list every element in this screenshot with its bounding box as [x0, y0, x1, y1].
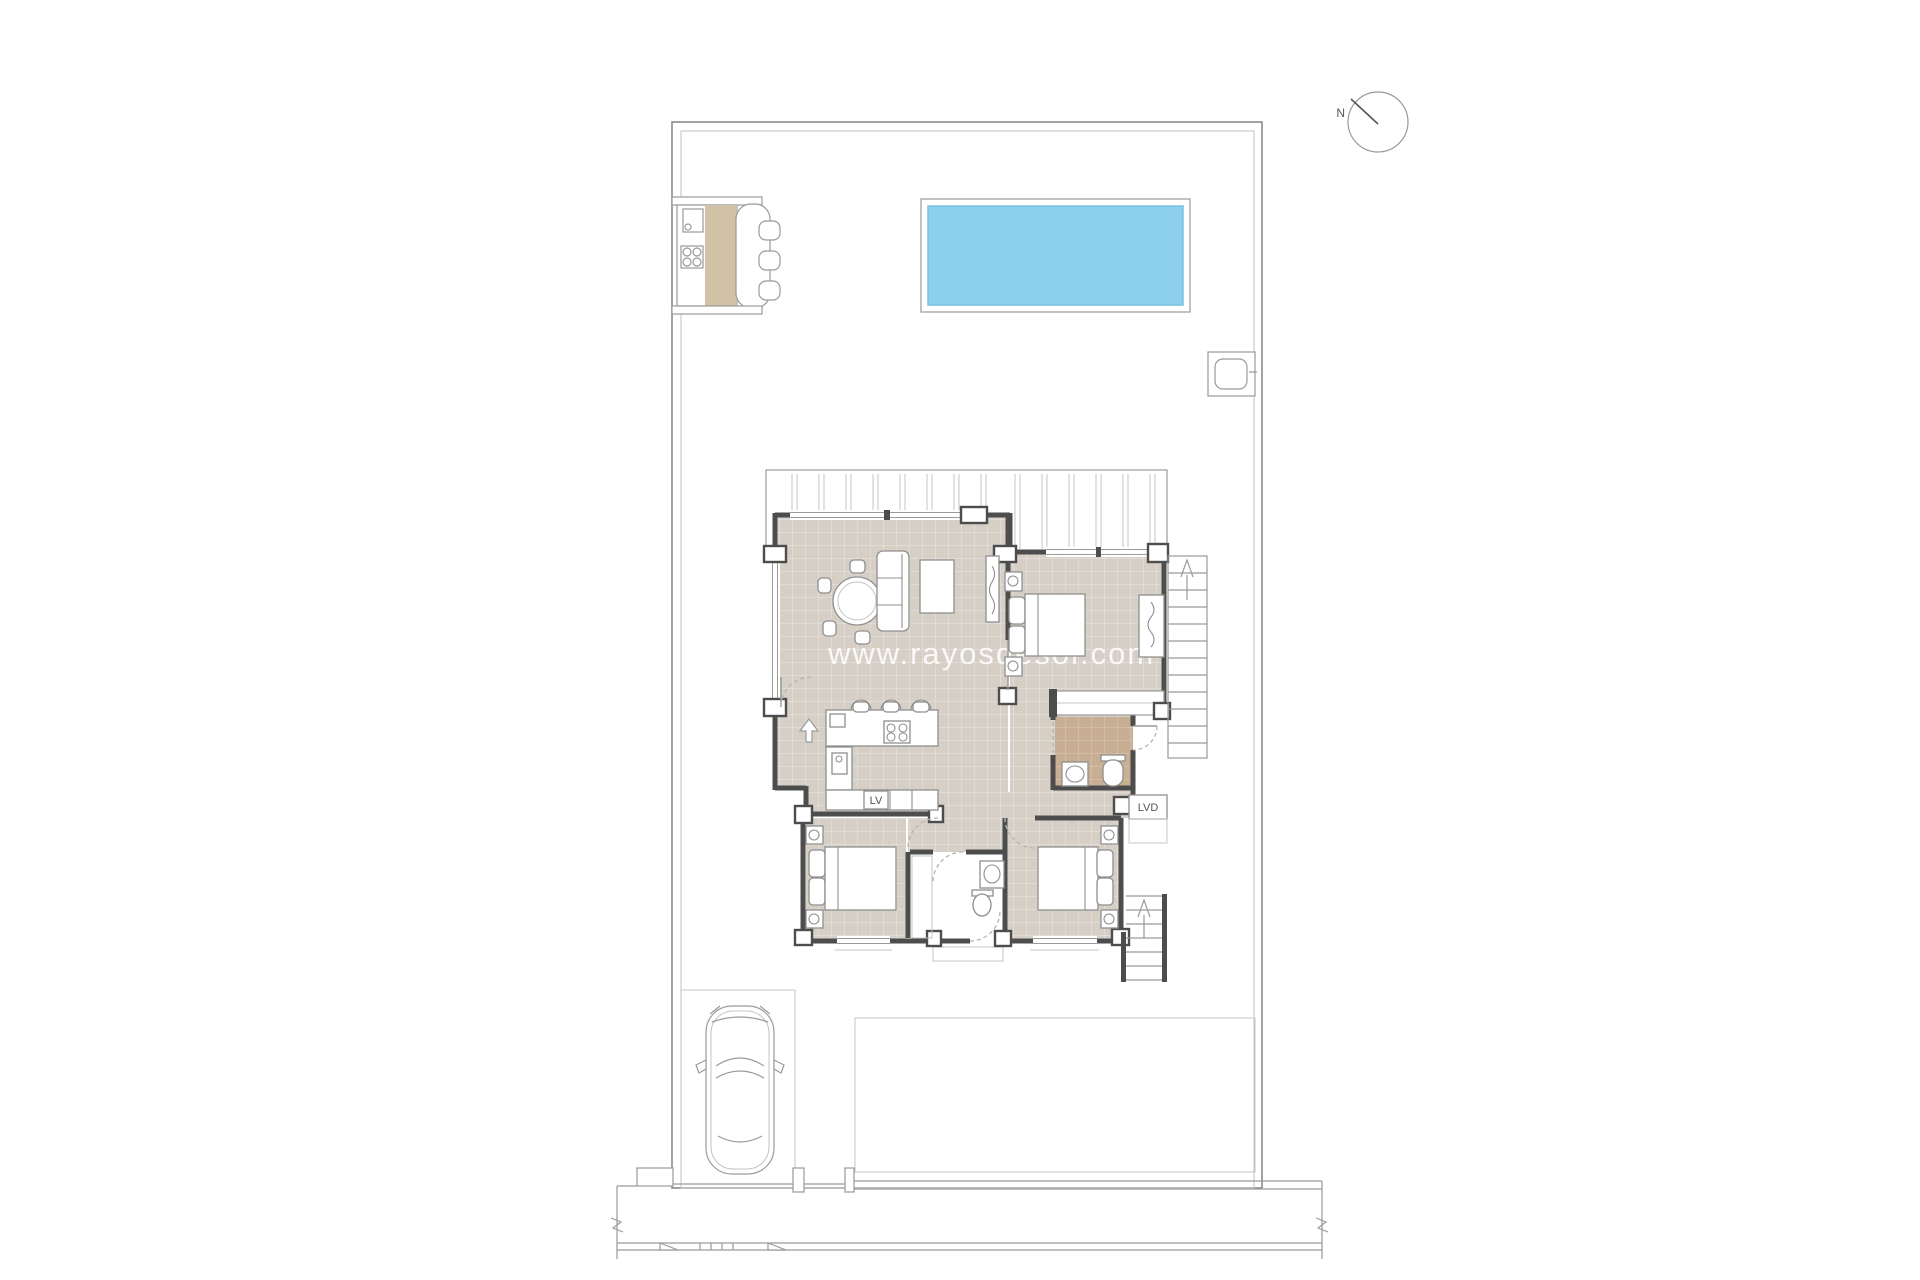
fence-corner	[637, 1168, 673, 1186]
floor-plan-canvas: www.rayosdesol.com	[0, 0, 1920, 1280]
closet-cap	[1049, 689, 1057, 717]
outdoor-counter-bottom-edge	[672, 306, 762, 314]
dining-chair	[823, 621, 836, 636]
pillow	[1097, 878, 1113, 905]
bar-stool-seat	[853, 702, 869, 712]
back-step	[933, 947, 1003, 961]
double-bed	[825, 847, 896, 910]
window-band	[770, 562, 780, 700]
gate-pillar	[845, 1168, 854, 1192]
car-mirror-right	[774, 1060, 784, 1073]
toilet	[1103, 760, 1123, 786]
outdoor-chair	[759, 221, 780, 240]
stair-wall	[1121, 932, 1126, 982]
pillar	[764, 699, 786, 716]
staircase-lower	[1121, 894, 1167, 982]
window-band	[837, 936, 890, 946]
pillar	[999, 688, 1016, 704]
stair-up-arrow-icon	[1138, 900, 1150, 938]
pillow	[809, 850, 825, 877]
passage-floor	[940, 792, 1010, 818]
pool-water	[928, 206, 1183, 305]
fence-and-street	[611, 1168, 1328, 1259]
car-body	[706, 1006, 774, 1174]
outdoor-kitchen	[672, 197, 780, 314]
sidewalk	[617, 1243, 1322, 1250]
pillow	[1009, 626, 1025, 653]
pillar	[795, 930, 812, 945]
break-mark	[611, 1218, 623, 1232]
outdoor-chair	[759, 251, 780, 270]
compass-circle	[1348, 92, 1408, 152]
dining-table	[833, 577, 881, 625]
pillow	[809, 878, 825, 905]
bar-stool-seat	[883, 702, 899, 712]
outdoor-chair	[759, 281, 780, 300]
break-mark	[1316, 1218, 1328, 1232]
staircase-upper	[1168, 556, 1207, 758]
compass-north-label: N	[1336, 106, 1345, 120]
toilet	[973, 894, 991, 916]
stair-wall	[1162, 894, 1167, 982]
pillar	[995, 931, 1011, 946]
car	[696, 1006, 784, 1174]
side-door-swing	[1133, 726, 1157, 750]
dining-chair	[850, 560, 865, 573]
pillow	[1097, 850, 1113, 877]
gate-pillar	[793, 1168, 804, 1192]
patio-outline	[855, 1018, 1255, 1172]
dining-chair	[855, 631, 870, 644]
coffee-table	[920, 560, 954, 613]
sofa	[877, 551, 909, 631]
pillow	[1009, 597, 1025, 624]
curb-ramp	[660, 1243, 678, 1250]
double-bed	[1025, 594, 1085, 656]
window-band	[1033, 936, 1097, 946]
window-band	[790, 510, 960, 520]
pillar	[795, 806, 812, 823]
window-mullion	[884, 510, 890, 520]
pillar	[961, 507, 987, 523]
floor-plan-page: www.rayosdesol.com	[0, 0, 1920, 1280]
curb-ticks	[700, 1243, 733, 1250]
wardrobe	[1139, 595, 1164, 657]
pool	[921, 199, 1190, 312]
compass: N	[1336, 92, 1408, 152]
dining-chair	[818, 578, 831, 593]
hall-floor	[908, 818, 1005, 852]
window-mullion	[1096, 547, 1101, 557]
stair-up-arrow-icon	[1181, 560, 1193, 600]
bar-stool-seat	[913, 702, 929, 712]
curb-ramp	[768, 1243, 786, 1250]
pillar	[764, 546, 786, 562]
watermark-text: www.rayosdesol.com	[827, 636, 1155, 671]
outdoor-counter-worktop	[705, 205, 737, 306]
island-sink	[830, 714, 845, 727]
car-mirror-left	[696, 1060, 706, 1073]
laundry-shelf	[1129, 819, 1167, 843]
pillar	[1112, 929, 1129, 945]
laundry-label: LVD	[1138, 802, 1159, 814]
garden-shower-box	[1208, 352, 1257, 396]
pillar	[1148, 544, 1168, 562]
dishwasher-label: LV	[870, 795, 883, 807]
laundry-niche: LVD	[1129, 795, 1167, 843]
patio	[855, 1018, 1255, 1172]
double-bed	[1038, 847, 1098, 910]
